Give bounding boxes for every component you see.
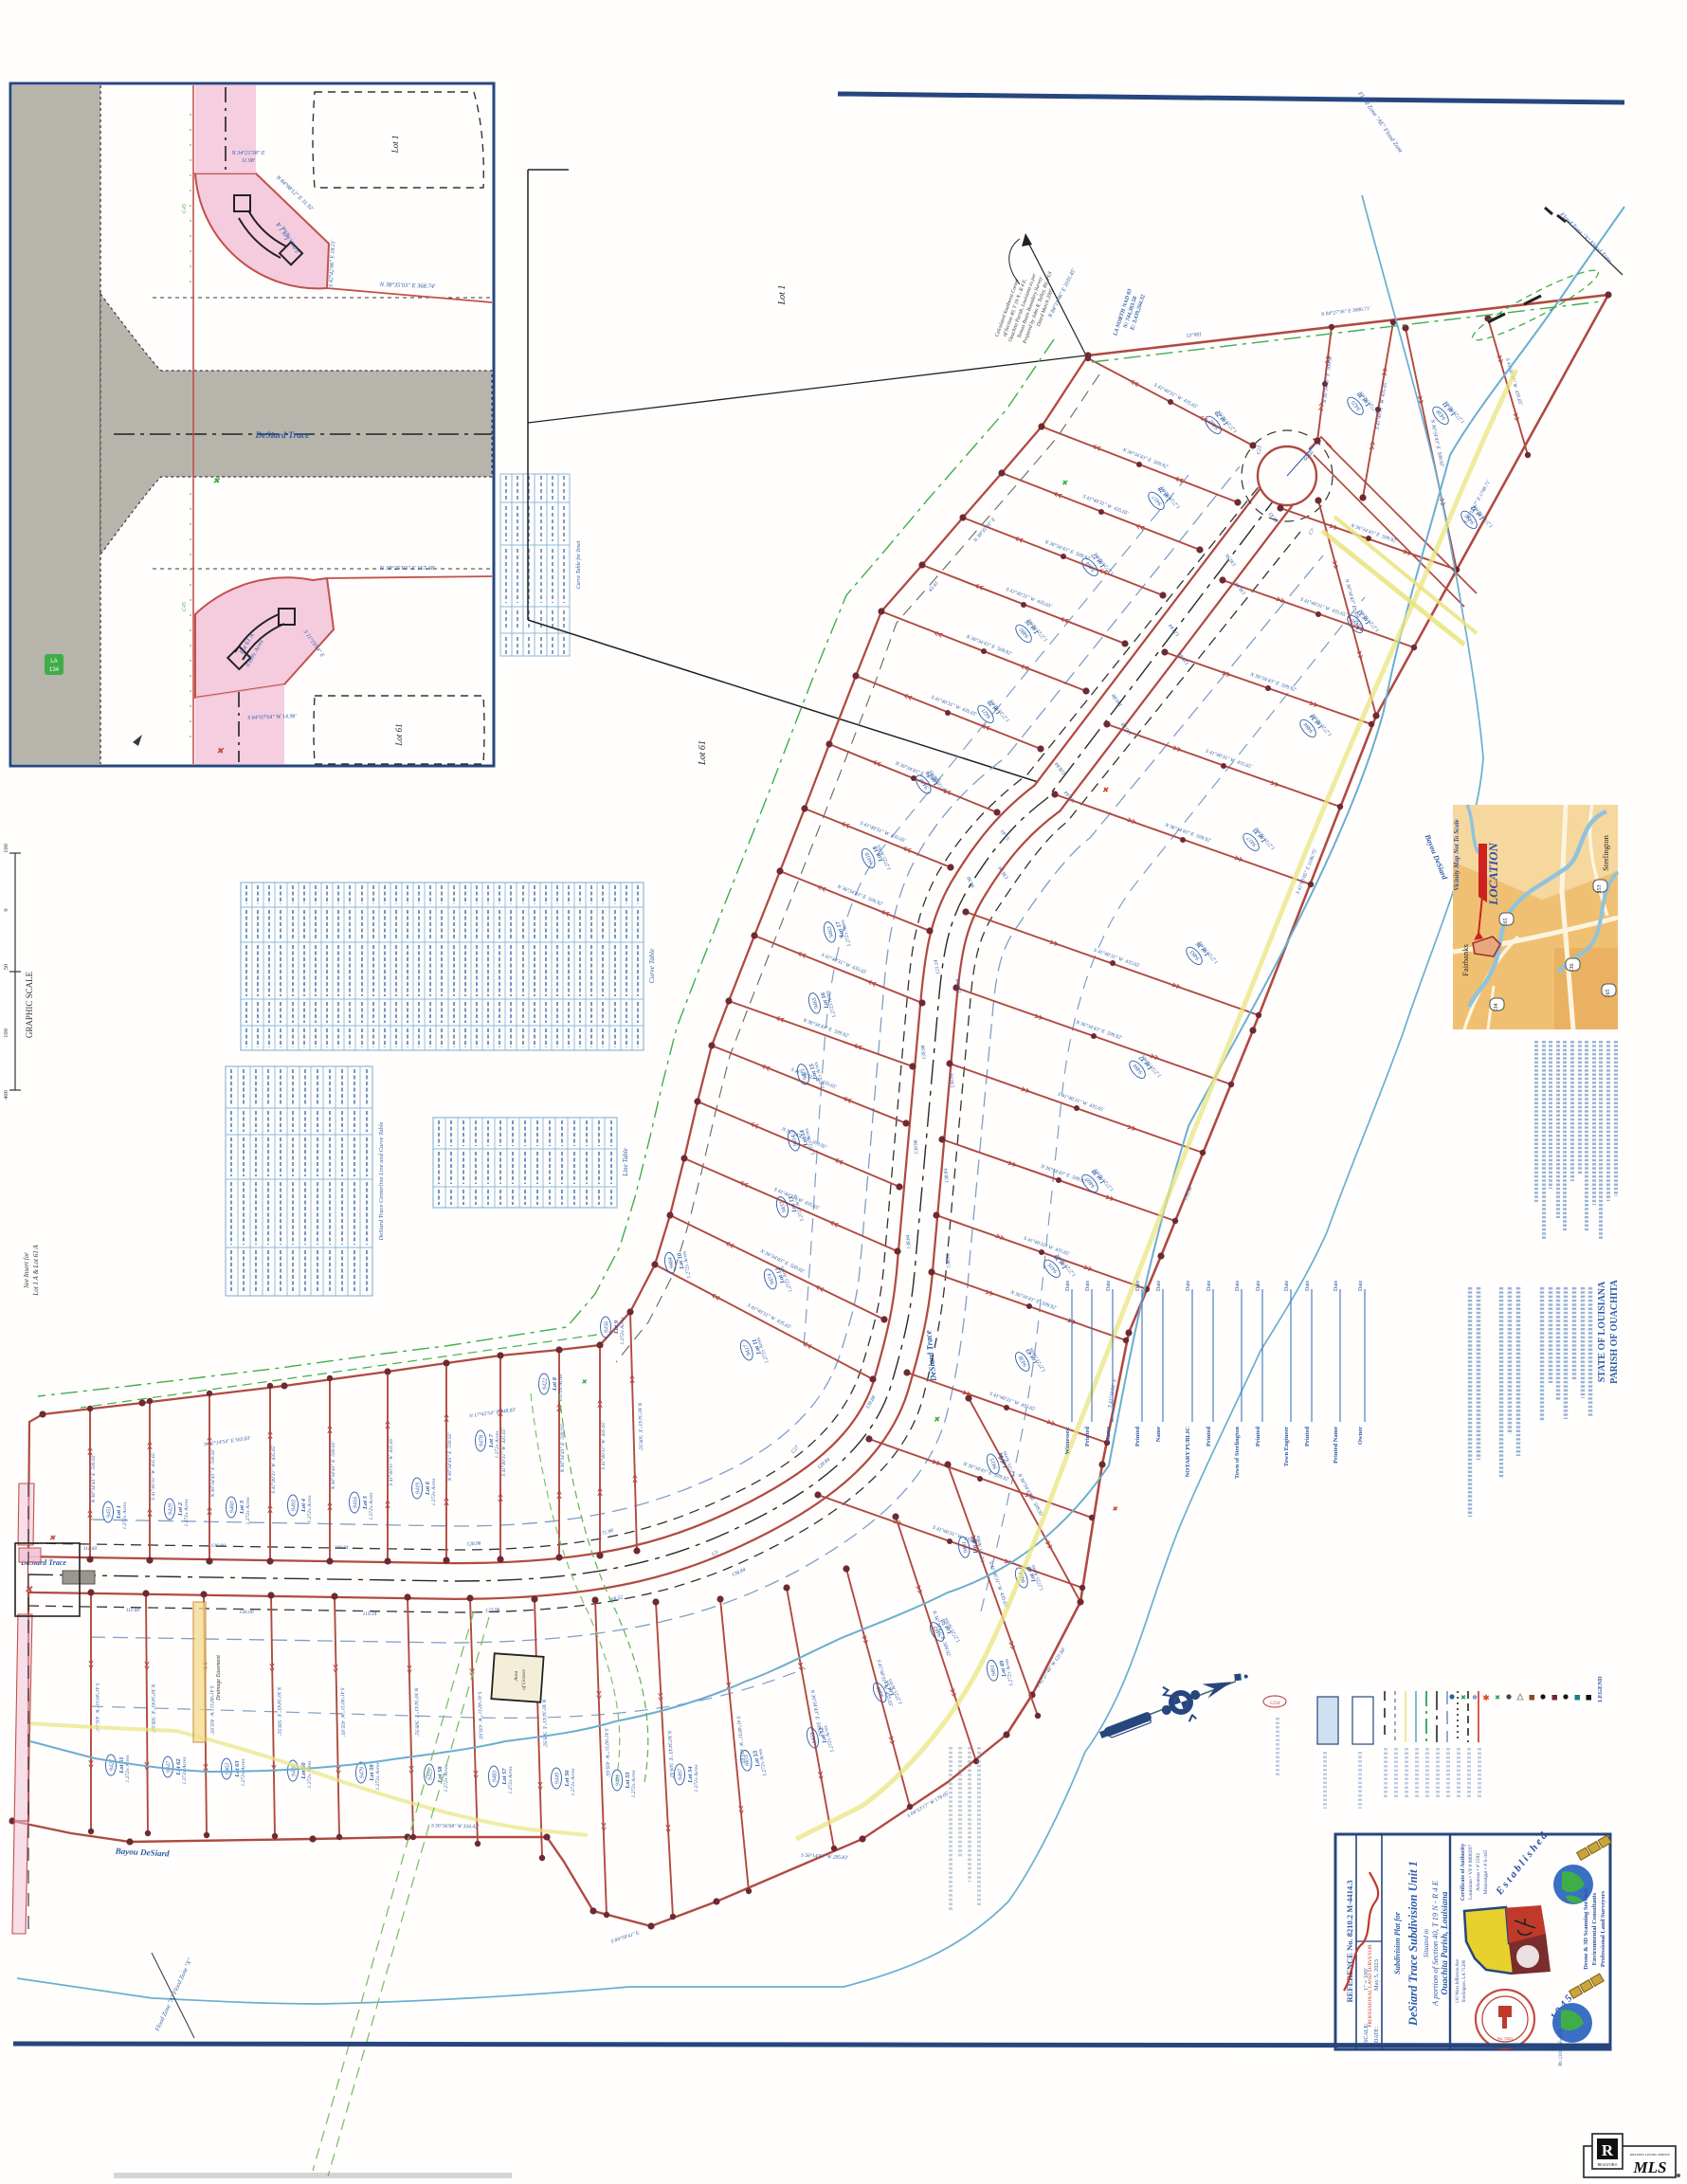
svg-text:Situated in: Situated in [1423,1928,1430,1957]
svg-text:1.272± Acres: 1.272± Acres [444,1765,449,1793]
svg-text:Environmental Consultants: Environmental Consultants [1591,1892,1598,1965]
svg-text:Professional Land Surveyors: Professional Land Surveyors [1600,1891,1606,1968]
svg-text:128.96: 128.96 [466,1540,481,1547]
svg-text:1.272± Acres: 1.272± Acres [631,1771,637,1798]
svg-text:GRAPHIC SCALE: GRAPHIC SCALE [25,971,34,1038]
svg-text:DeSiard Trace Subdivision Unit: DeSiard Trace Subdivision Unit 1 [1406,1861,1420,2027]
svg-text:PARISH OF OUACHITA: PARISH OF OUACHITA [1609,1279,1620,1384]
svg-text:9419: 9419 [415,1483,422,1494]
svg-text:N 38°25'03" E 167.48': N 38°25'03" E 167.48' [379,565,436,572]
svg-text:9478: 9478 [479,1435,485,1447]
svg-text:111.60: 111.60 [83,1546,98,1552]
svg-text:✖: ✖ [216,746,224,755]
svg-text:N 36°34'43" E 509.92': N 36°34'43" E 509.92' [276,1685,283,1736]
svg-text:136.96: 136.96 [945,1253,952,1268]
svg-text:138.84: 138.84 [904,1234,912,1249]
svg-text:LEGEND: LEGEND [1597,1676,1604,1702]
svg-text:165: 165 [1605,990,1611,998]
svg-text:See Insert for: See Insert for [23,1252,30,1288]
svg-text:May 5, 2023: May 5, 2023 [1373,1959,1380,1991]
svg-text:REALTOR®: REALTOR® [1597,2162,1617,2167]
svg-text:11.98': 11.98' [242,158,256,164]
svg-text:Lot 62: Lot 62 [175,1758,182,1776]
svg-text:Sterlington: Sterlington [1601,834,1610,871]
svg-text:1.272± Acres: 1.272± Acres [245,1498,251,1525]
svg-text:9449: 9449 [554,1773,561,1784]
svg-text:N 36°34'43" E 509.92': N 36°34'43" E 509.92' [446,1432,453,1483]
svg-text:✖: ✖ [1460,1694,1466,1702]
svg-text:Fairbanks: Fairbanks [1460,944,1470,976]
svg-text:9429: 9429 [168,1503,174,1515]
svg-text:❄: ❄ [1472,1694,1478,1702]
svg-text:Drone & 3D Scanning Services: Drone & 3D Scanning Services [1583,1888,1589,1970]
svg-text:Date: Date [1206,1280,1212,1291]
svg-text:119.34: 119.34 [335,1544,349,1551]
svg-text:100: 100 [3,1028,9,1038]
svg-text:S 41°40'31" W 435.65': S 41°40'31" W 435.65' [270,1445,277,1494]
svg-text:S 41°40'31" W 435.65': S 41°40'31" W 435.65' [500,1428,507,1477]
svg-text:1.272± Acres: 1.272± Acres [620,1318,626,1345]
svg-text:N 36°34'43" E 509.92': N 36°34'43" E 509.92' [636,1401,644,1451]
svg-text:N 34°21'38" E: N 34°21'38" E [231,150,265,156]
svg-text:1.272± Acres: 1.272± Acres [431,1479,437,1506]
svg-text:Lot 2: Lot 2 [177,1501,184,1517]
svg-text:LA: LA [50,659,57,664]
svg-text:No. 5023: No. 5023 [1497,2036,1514,2041]
svg-text:110 West Jefferson Ave: 110 West Jefferson Ave [1456,1958,1460,2004]
svg-text:Date: Date [1106,1280,1112,1291]
svg-text:Lot 9: Lot 9 [613,1319,620,1335]
svg-text:1.272± Acres: 1.272± Acres [125,1756,131,1783]
svg-text:Lot 61: Lot 61 [394,723,404,746]
svg-text:1" = 100': 1" = 100' [1363,1968,1370,1991]
svg-text:9481: 9481 [615,1774,622,1786]
svg-text:Area: Area [514,1671,519,1683]
svg-text:Lot 7: Lot 7 [488,1433,495,1448]
svg-text:1.272± Acres: 1.272± Acres [307,1496,313,1523]
svg-text:Curve Table for Inset: Curve Table for Inset [575,540,582,589]
svg-text:N 36°34'43" E 509.92': N 36°34'43" E 509.92' [150,1683,156,1733]
svg-text:Lot 1: Lot 1 [777,285,788,306]
svg-text:✖: ✖ [212,476,220,485]
svg-text:Lot 6: Lot 6 [425,1481,431,1496]
svg-text:Date: Date [1065,1280,1071,1291]
svg-text:Lot 61: Lot 61 [698,740,708,766]
svg-text:111.60: 111.60 [126,1608,140,1613]
svg-text:Lot 58: Lot 58 [437,1766,444,1784]
svg-text:Name: Name [1155,1427,1162,1442]
svg-text:R: R [1602,2141,1614,2159]
svg-text:S 41°40'31" W 435.65': S 41°40'31" W 435.65' [150,1451,156,1501]
svg-text:Printed Name: Printed Name [1333,1427,1339,1464]
svg-text:1.272± Acres: 1.272± Acres [122,1502,128,1530]
svg-text:Date: Date [1256,1280,1261,1291]
svg-text:1.272± Acres: 1.272± Acres [375,1763,381,1791]
svg-text:Town Engineer: Town Engineer [1283,1427,1290,1466]
svg-text:9463: 9463 [225,1763,231,1774]
svg-text:1.272± Acres: 1.272± Acres [571,1769,576,1796]
svg-text:165: 165 [1503,919,1509,927]
svg-text:Date: Date [1358,1280,1364,1291]
svg-text:Vicinity Map Not To Scale: Vicinity Map Not To Scale [1453,819,1460,891]
svg-text:130.96: 130.96 [913,1139,919,1155]
svg-text:Lot 63: Lot 63 [234,1760,241,1778]
svg-text:N 36°34'43" E 509.92': N 36°34'43" E 509.92' [559,1424,566,1474]
svg-text:Arkansas • # 1592: Arkansas • # 1592 [1476,1853,1481,1892]
svg-text:Certificate of Authority: Certificate of Authority [1460,1844,1466,1901]
svg-text:Date: Date [1284,1280,1290,1291]
svg-text:S 41°40'31" W 435.65': S 41°40'31" W 435.65' [209,1685,216,1735]
svg-text:Date: Date [1186,1280,1191,1291]
svg-text:of Graves: of Graves [520,1669,527,1690]
svg-text:Lot 57: Lot 57 [501,1768,508,1786]
svg-text:✱: ✱ [1482,1693,1490,1702]
svg-text:9422: 9422 [542,1378,549,1390]
svg-text:9456: 9456 [604,1321,610,1333]
svg-text:DeSiard Trace: DeSiard Trace [255,431,311,441]
svg-text:S 41°40'31" W 435.65': S 41°40'31" W 435.65' [338,1687,346,1737]
svg-text:STATE OF LOUISIANA: STATE OF LOUISIANA [1597,1281,1607,1382]
svg-text:DeSiard Trace Centerline Line: DeSiard Trace Centerline Line and Curve … [378,1121,385,1241]
svg-text:Lot 5: Lot 5 [362,1495,369,1510]
svg-text:S 41°40'31" W 435.65': S 41°40'31" W 435.65' [94,1683,100,1732]
svg-text:Date: Date [1305,1280,1311,1291]
svg-text:Lot 3: Lot 3 [239,1500,245,1515]
svg-text:9416: 9416 [353,1497,359,1508]
svg-text:DATE:: DATE: [1374,2027,1380,2043]
svg-text:Name: Name [1105,1427,1112,1442]
svg-text:MLS: MLS [1633,2158,1667,2176]
svg-text:Lot 59: Lot 59 [369,1764,375,1782]
svg-text:Date: Date [1235,1280,1241,1291]
svg-text:C45: C45 [181,204,188,213]
svg-text:9460: 9460 [229,1501,236,1513]
svg-text:Lot 4: Lot 4 [300,1498,307,1513]
svg-text:1.272± Acres: 1.272± Acres [369,1493,374,1520]
svg-text:Lot 54: Lot 54 [687,1766,694,1784]
svg-text:C45: C45 [181,602,188,611]
svg-text:Printed: Printed [1134,1427,1141,1447]
svg-text:Lot 1 A & Lot 61 A: Lot 1 A & Lot 61 A [32,1245,40,1297]
svg-text:N 36°34'43" E 509.92': N 36°34'43" E 509.92' [90,1454,97,1504]
svg-text:✖: ✖ [1495,1694,1500,1702]
svg-text:Town of Sterlington: Town of Sterlington [1234,1427,1241,1479]
svg-text:Printed: Printed [1255,1427,1261,1447]
svg-text:Printed: Printed [1304,1427,1311,1447]
svg-text:MULTIPLE LISTING SERVICE: MULTIPLE LISTING SERVICE [1630,2153,1671,2157]
svg-text:S 56°36'08" W 334.42': S 56°36'08" W 334.42' [431,1823,480,1830]
svg-text:9483: 9483 [492,1771,499,1782]
svg-text:N 36°34'43" E 509.92': N 36°34'43" E 509.92' [209,1448,216,1499]
svg-text:9479: 9479 [359,1767,366,1778]
svg-text:Lot 55: Lot 55 [625,1772,631,1790]
svg-text:1.272± Acres: 1.272± Acres [508,1767,514,1794]
svg-text:400: 400 [3,1090,9,1100]
svg-text:9497: 9497 [678,1768,684,1780]
svg-text:LOCATION: LOCATION [1486,843,1500,906]
svg-text:100: 100 [3,844,9,853]
svg-text:136.00: 136.00 [210,1543,225,1549]
svg-text:50: 50 [3,964,9,971]
svg-text:553: 553 [1597,885,1603,894]
svg-text:SCALE:: SCALE: [1364,2023,1370,2043]
svg-text:N 36°34'43" E 509.92': N 36°34'43" E 509.92' [330,1441,336,1491]
svg-text:Lot 56: Lot 56 [564,1770,571,1788]
svg-text:Printed: Printed [1206,1427,1212,1447]
svg-text:NOTARY PUBLIC: NOTARY PUBLIC [1185,1427,1191,1478]
svg-text:Mississippi • # S-345: Mississippi • # S-345 [1483,1849,1489,1894]
svg-text:9451: 9451 [106,1506,113,1518]
svg-text:1.272± Acres: 1.272± Acres [184,1500,190,1527]
svg-text:S 41°40'31" W 435.65': S 41°40'31" W 435.65' [600,1421,607,1470]
svg-text:1.272± Acres: 1.272± Acres [495,1431,500,1459]
svg-text:Owner: Owner [1357,1427,1364,1445]
svg-text:Lot 1: Lot 1 [116,1505,122,1520]
svg-text:Date: Date [1156,1280,1162,1291]
svg-text:Printed: Printed [1084,1427,1091,1447]
svg-text:Date: Date [1135,1280,1141,1291]
svg-text:Lot 61: Lot 61 [118,1756,125,1774]
svg-text:134: 134 [49,667,60,673]
svg-text:Drainage Easement: Drainage Easement [216,1655,222,1702]
svg-text:A portion of Section 40, T 19: A portion of Section 40, T 19 N - R 4 E [1430,1880,1440,2007]
svg-text:N 36°34'43" E 509.92': N 36°34'43" E 509.92' [412,1686,420,1737]
svg-text:1.272± Acres: 1.272± Acres [694,1765,699,1793]
svg-text:134: 134 [1494,1004,1499,1012]
svg-text:Lot 8: Lot 8 [552,1376,558,1392]
svg-text:1.272± Acres: 1.272± Acres [241,1759,246,1787]
svg-text:Curve Table: Curve Table [647,948,656,983]
svg-text:Date: Date [1085,1280,1091,1291]
svg-text:Subdivision Plat for: Subdivision Plat for [1393,1911,1402,1975]
svg-text:0: 0 [3,908,9,911]
svg-text:9493: 9493 [291,1500,298,1511]
svg-text:Ouachita Parish, Louisiana: Ouachita Parish, Louisiana [1441,1891,1450,1994]
svg-text:S 41°40'31" W 435.65': S 41°40'31" W 435.65' [388,1437,394,1486]
svg-text:9447: 9447 [166,1760,172,1773]
svg-text:Line Table: Line Table [622,1148,629,1177]
svg-text:Date: Date [1333,1280,1339,1291]
svg-text:1.272± Acres: 1.272± Acres [307,1761,313,1789]
svg-text:119.34: 119.34 [363,1611,377,1617]
svg-text:Lot 1: Lot 1 [390,136,400,155]
svg-text:Witnesses:: Witnesses: [1064,1427,1071,1455]
svg-text:136: 136 [1569,964,1575,973]
svg-text:136.00: 136.00 [239,1610,253,1615]
svg-text:Sterlington, LA 71280: Sterlington, LA 71280 [1462,1959,1467,2002]
svg-text:1234: 1234 [1270,1701,1280,1706]
svg-text:Louisiana • VF # 0000397: Louisiana • VF # 0000397 [1468,1845,1474,1900]
